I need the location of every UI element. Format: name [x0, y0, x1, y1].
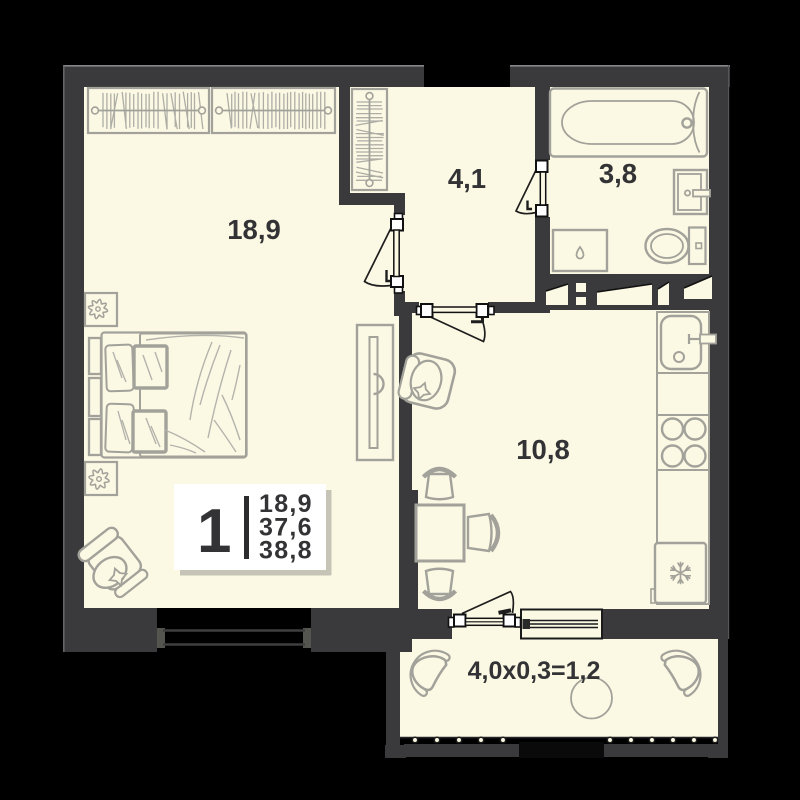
svg-text:3,8: 3,8	[599, 158, 637, 189]
svg-text:18,9: 18,9	[227, 214, 281, 245]
svg-text:4,0x0,3=1,2: 4,0x0,3=1,2	[468, 657, 601, 685]
svg-text:38,8: 38,8	[259, 537, 313, 565]
svg-text:1: 1	[197, 497, 231, 566]
svg-text:4,1: 4,1	[448, 163, 486, 194]
svg-text:10,8: 10,8	[516, 434, 570, 465]
